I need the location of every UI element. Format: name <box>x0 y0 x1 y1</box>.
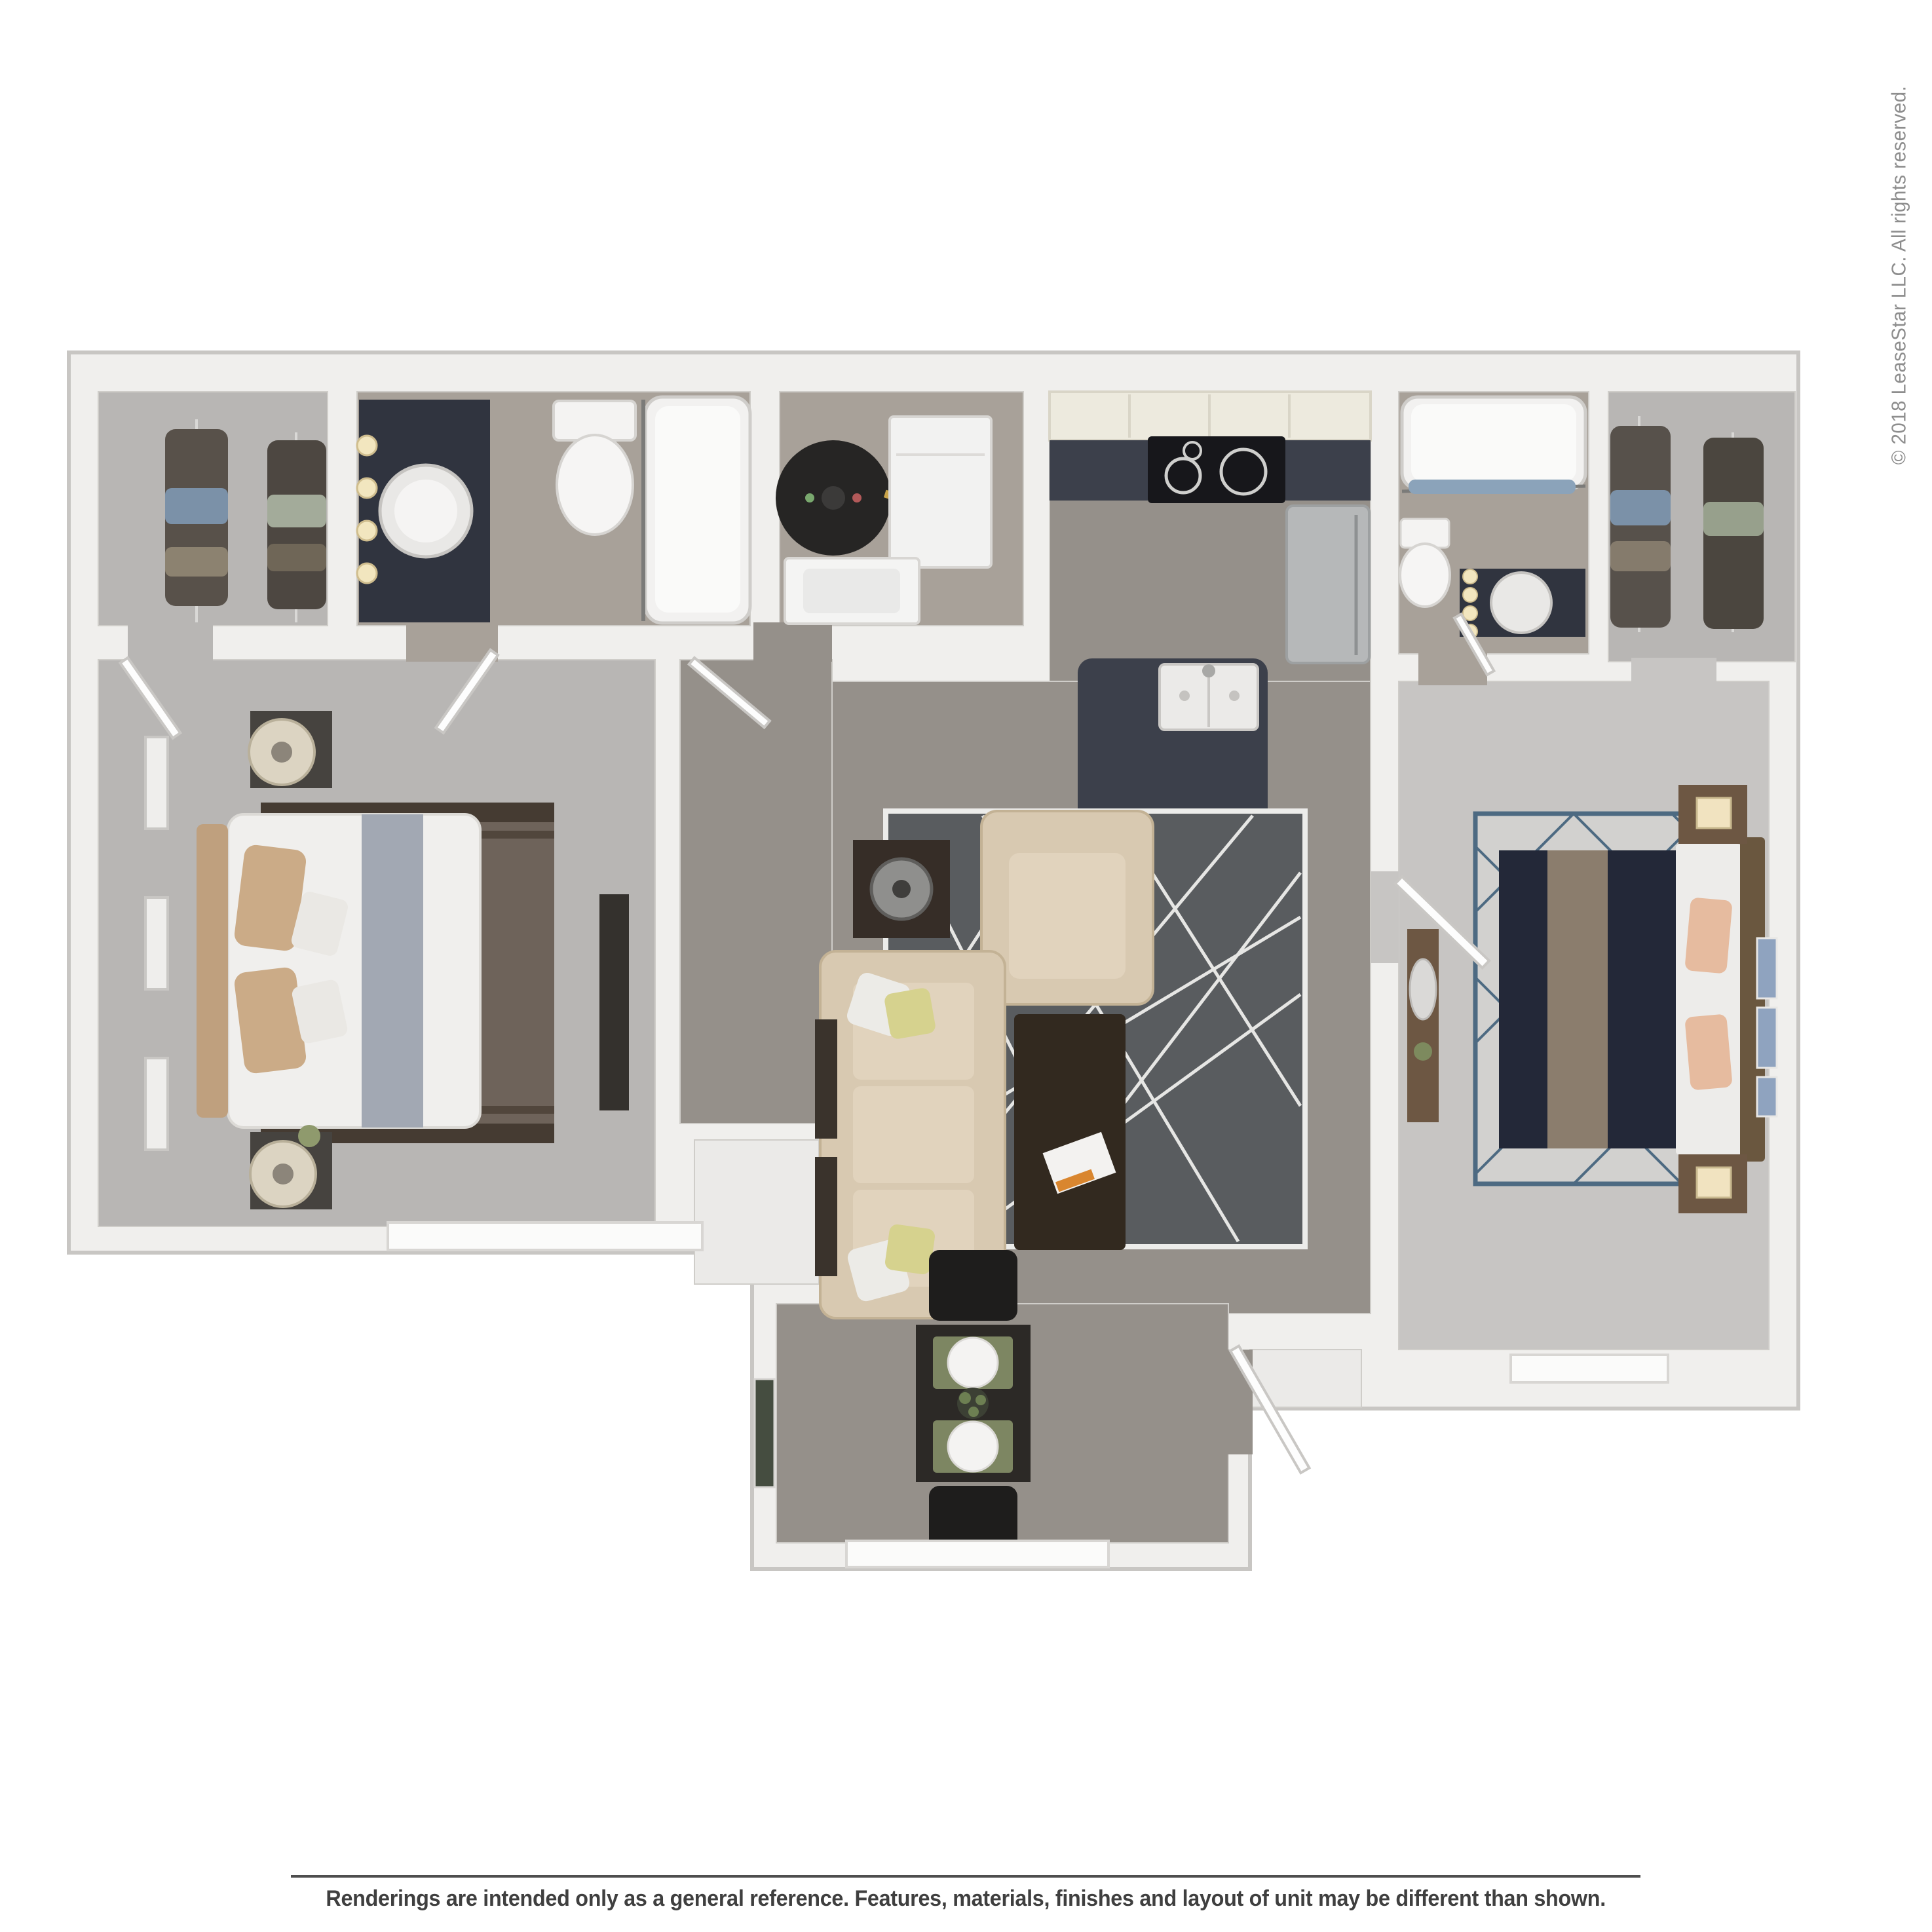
opening-bath1 <box>406 622 498 662</box>
dining-plant-leaf-3 <box>968 1407 979 1417</box>
bedroom2-pillow-2 <box>1684 1013 1733 1090</box>
laundry-dryer-door <box>803 569 900 613</box>
closet2-clothes-accent-green <box>1703 502 1764 536</box>
master-wall-frame-2 <box>145 898 168 989</box>
dining-plant-leaf-2 <box>975 1395 986 1405</box>
master-wall-frame-1 <box>145 737 168 829</box>
sofa-cushion-2 <box>853 1086 974 1183</box>
table-fan-hub <box>892 880 911 898</box>
bath1-vanity-light-1 <box>357 436 377 455</box>
sofa-pillow-yellow-2 <box>884 1223 936 1275</box>
floor-plan-svg <box>0 0 1932 1932</box>
dining-plate-north <box>948 1338 998 1388</box>
island-sink-drain-1 <box>1179 691 1190 701</box>
room-hall-alcove <box>680 660 832 1124</box>
opening-laundry-hall <box>753 622 832 662</box>
closet2-clothes-accent-tan <box>1610 541 1671 571</box>
copyright-label: © 2018 LeaseStar LLC. All rights reserve… <box>1887 86 1911 465</box>
laundry-washer <box>890 417 991 567</box>
bedroom2-lamp-north <box>1697 798 1731 828</box>
bath1-vanity-light-4 <box>357 563 377 583</box>
bedroom2-wall-art-2 <box>1757 1008 1777 1068</box>
laundry-water-heater-cap <box>822 486 845 510</box>
opening-closet2 <box>1631 658 1716 685</box>
bath2-tub-basin <box>1411 404 1576 482</box>
bath1-vanity-light-2 <box>357 478 377 498</box>
bedroom2-dresser-plant <box>1414 1042 1432 1061</box>
bedroom2-bed-runner <box>1547 850 1608 1148</box>
master-headboard <box>197 824 228 1118</box>
disclaimer-label: Renderings are intended only as a genera… <box>326 1886 1606 1912</box>
closet1-clothes-accent-blue <box>165 488 228 524</box>
dining-plant-leaf-1 <box>959 1392 971 1404</box>
bath2-vanity-light-1 <box>1463 569 1477 584</box>
dining-chair-north <box>929 1250 1017 1321</box>
dining-window <box>846 1541 1108 1567</box>
closet1-clothes-accent-green <box>267 495 326 527</box>
master-lamp-north-center <box>271 742 292 763</box>
bath1-sink-basin <box>394 480 457 542</box>
laundry-heater-light-green <box>805 493 814 502</box>
island-faucet <box>1202 664 1215 677</box>
bedroom2-wall-art-3 <box>1757 1077 1777 1116</box>
bath1-toilet-bowl <box>557 435 633 535</box>
disclaimer-text: Renderings are intended only as a genera… <box>0 1886 1932 1912</box>
bedroom2-window <box>1511 1355 1668 1382</box>
master-bed-runner <box>362 814 423 1127</box>
master-nightstand-plant <box>298 1125 320 1147</box>
sofa-pillow-yellow-1 <box>883 987 936 1040</box>
bedroom2-pillow-1 <box>1684 897 1733 974</box>
wall-shelf-2 <box>815 1157 837 1276</box>
dining-wall-art <box>755 1379 774 1487</box>
bath2-shower-curtain <box>1409 480 1576 494</box>
bedroom2-dresser <box>1407 929 1439 1122</box>
master-pillow-tan-2 <box>233 966 307 1074</box>
master-wall-frame-3 <box>145 1058 168 1150</box>
bath2-toilet-bowl <box>1400 544 1450 607</box>
wall-shelf-1 <box>815 1019 837 1139</box>
island-sink-drain-2 <box>1229 691 1240 701</box>
closet1-clothes-accent-tan <box>165 547 228 577</box>
footer-divider <box>291 1875 1640 1878</box>
armchair-cushion <box>1009 853 1126 979</box>
bath2-vanity-light-2 <box>1463 588 1477 602</box>
coffee-table <box>1014 1014 1126 1250</box>
bedroom2-dresser-mirror <box>1410 959 1436 1019</box>
closet1-clothes-accent-brown <box>267 544 326 571</box>
kitchen-counter-right <box>1285 440 1371 501</box>
bedroom2-lamp-south <box>1697 1167 1731 1198</box>
room-closet-nook <box>694 1140 819 1284</box>
opening-closet1 <box>128 622 213 662</box>
bedroom2-bed-sheets <box>1676 844 1741 1155</box>
master-tv-console <box>599 894 629 1110</box>
closet2-clothes-1 <box>1610 426 1671 628</box>
kitchen-counter-left <box>1050 440 1148 501</box>
master-window <box>388 1222 702 1250</box>
master-lamp-south-center <box>273 1164 294 1184</box>
laundry-heater-light-red <box>852 493 862 502</box>
bedroom2-wall-art-1 <box>1757 938 1777 998</box>
closet2-clothes-accent-blue <box>1610 490 1671 525</box>
floor-plan-page: © 2018 LeaseStar LLC. All rights reserve… <box>0 0 1932 1932</box>
bath1-vanity-light-3 <box>357 521 377 540</box>
copyright-text: © 2018 LeaseStar LLC. All rights reserve… <box>1876 36 1923 514</box>
dining-plate-south <box>948 1422 998 1471</box>
bath1-tub-basin <box>655 406 740 613</box>
bath2-sink <box>1491 573 1551 633</box>
opening-bedroom2 <box>1371 871 1399 963</box>
